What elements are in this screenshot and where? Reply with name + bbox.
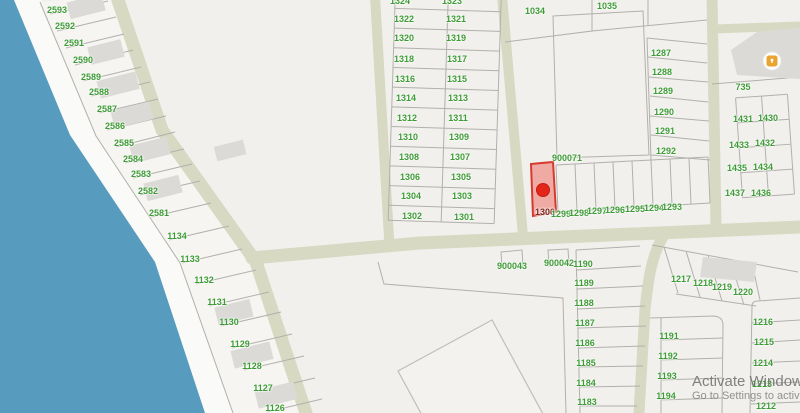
parcel-label-1133[interactable]: 1133 [180, 254, 200, 264]
parcel-label-1213[interactable]: 1213 [752, 379, 772, 389]
parcel-label-2593[interactable]: 2593 [47, 5, 67, 15]
parcel-label-1189[interactable]: 1189 [574, 278, 594, 288]
parcel-label-1128[interactable]: 1128 [242, 361, 262, 371]
parcel-label-1305[interactable]: 1305 [451, 172, 471, 182]
parcel-label-1131[interactable]: 1131 [207, 297, 227, 307]
parcel-label-1312[interactable]: 1312 [397, 113, 417, 123]
parcel-label-1437[interactable]: 1437 [725, 188, 745, 198]
parcel-label-1193[interactable]: 1193 [657, 371, 677, 381]
parcel-label-1293[interactable]: 1293 [662, 202, 682, 212]
parcel-label-1296[interactable]: 1296 [605, 205, 625, 215]
parcel-label-1322[interactable]: 1322 [394, 14, 414, 24]
parcel-label-2589[interactable]: 2589 [81, 72, 101, 82]
parcel-label-1324[interactable]: 1324 [390, 0, 410, 6]
parcel-label-1309[interactable]: 1309 [449, 132, 469, 142]
parcel-label-1291[interactable]: 1291 [655, 126, 675, 136]
parcel-label-1034[interactable]: 1034 [525, 6, 545, 16]
parcel-label-1194[interactable]: 1194 [656, 391, 676, 401]
parcel-label-2585[interactable]: 2585 [114, 138, 134, 148]
parcel-label-1295[interactable]: 1295 [625, 204, 645, 214]
parcel-label-1314[interactable]: 1314 [396, 93, 416, 103]
parcel-label-1434[interactable]: 1434 [753, 162, 773, 172]
parcel-label-1184[interactable]: 1184 [576, 378, 596, 388]
parcel-label-1316[interactable]: 1316 [395, 74, 415, 84]
parcel-label-1313[interactable]: 1313 [448, 93, 468, 103]
parcel-label-735[interactable]: 735 [735, 82, 750, 92]
parcel-label-1187[interactable]: 1187 [575, 318, 595, 328]
parcel-label-1308[interactable]: 1308 [399, 152, 419, 162]
parcel-label-1219[interactable]: 1219 [712, 282, 732, 292]
parcel-label-2586[interactable]: 2586 [105, 121, 125, 131]
parcel-label-2590[interactable]: 2590 [73, 55, 93, 65]
parcel-label-1307[interactable]: 1307 [450, 152, 470, 162]
parcel-label-1320[interactable]: 1320 [394, 33, 414, 43]
parcel-label-1217[interactable]: 1217 [671, 274, 691, 284]
parcel-label-1183[interactable]: 1183 [577, 397, 597, 407]
parcel-label-1214[interactable]: 1214 [753, 358, 773, 368]
parcel-label-1035[interactable]: 1035 [597, 1, 617, 11]
parcel-label-1310[interactable]: 1310 [398, 132, 418, 142]
parcel-label-1306[interactable]: 1306 [400, 172, 420, 182]
parcel-label-1319[interactable]: 1319 [446, 33, 466, 43]
parcel-label-1191[interactable]: 1191 [659, 331, 679, 341]
parcel-label-1212[interactable]: 1212 [756, 401, 776, 411]
parcel-label-2588[interactable]: 2588 [89, 87, 109, 97]
parcel-label-1218[interactable]: 1218 [693, 278, 713, 288]
parcel-label-2592[interactable]: 2592 [55, 21, 75, 31]
parcel-label-1311[interactable]: 1311 [448, 113, 468, 123]
parcel-label-1318[interactable]: 1318 [394, 54, 414, 64]
parcel-label-1321[interactable]: 1321 [446, 14, 466, 24]
parcel-labels-layer: 2593259225912590258925882587258625852584… [0, 0, 800, 413]
parcel-label-1289[interactable]: 1289 [653, 86, 673, 96]
parcel-label-1127[interactable]: 1127 [253, 383, 273, 393]
parcel-label-2587[interactable]: 2587 [97, 104, 117, 114]
parcel-label-1436[interactable]: 1436 [751, 188, 771, 198]
parcel-label-1216[interactable]: 1216 [753, 317, 773, 327]
parcel-label-1190[interactable]: 1190 [573, 259, 593, 269]
parcel-label-900071[interactable]: 900071 [552, 153, 582, 163]
parcel-label-1302[interactable]: 1302 [402, 211, 422, 221]
parcel-label-1435[interactable]: 1435 [727, 163, 747, 173]
parcel-label-1433[interactable]: 1433 [729, 140, 749, 150]
parcel-label-2583[interactable]: 2583 [131, 169, 151, 179]
parcel-label-1134[interactable]: 1134 [167, 231, 187, 241]
parcel-label-1215[interactable]: 1215 [754, 337, 774, 347]
parcel-label-1188[interactable]: 1188 [574, 298, 594, 308]
parcel-label-1323[interactable]: 1323 [442, 0, 462, 6]
parcel-label-1304[interactable]: 1304 [401, 191, 421, 201]
parcel-label-900042[interactable]: 900042 [544, 258, 574, 268]
parcel-label-1317[interactable]: 1317 [447, 54, 467, 64]
parcel-label-1192[interactable]: 1192 [658, 351, 678, 361]
parcel-label-1301[interactable]: 1301 [454, 212, 474, 222]
parcel-label-2582[interactable]: 2582 [138, 186, 158, 196]
parcel-label-1186[interactable]: 1186 [575, 338, 595, 348]
parcel-label-1287[interactable]: 1287 [651, 48, 671, 58]
parcel-label-1292[interactable]: 1292 [656, 146, 676, 156]
parcel-label-1220[interactable]: 1220 [733, 287, 753, 297]
parcel-label-1288[interactable]: 1288 [652, 67, 672, 77]
parcel-label-900043[interactable]: 900043 [497, 261, 527, 271]
parcel-label-1315[interactable]: 1315 [447, 74, 467, 84]
parcel-label-1431[interactable]: 1431 [733, 114, 753, 124]
map-canvas[interactable]: 2593259225912590258925882587258625852584… [0, 0, 800, 413]
parcel-label-1290[interactable]: 1290 [654, 107, 674, 117]
parcel-label-1430[interactable]: 1430 [758, 113, 778, 123]
parcel-label-1130[interactable]: 1130 [219, 317, 239, 327]
parcel-label-2591[interactable]: 2591 [64, 38, 84, 48]
parcel-label-1126[interactable]: 1126 [265, 403, 285, 413]
parcel-label-1303[interactable]: 1303 [452, 191, 472, 201]
parcel-label-1132[interactable]: 1132 [194, 275, 214, 285]
parcel-label-1432[interactable]: 1432 [755, 138, 775, 148]
parcel-label-1129[interactable]: 1129 [230, 339, 250, 349]
parcel-label-2584[interactable]: 2584 [123, 154, 143, 164]
parcel-label-1185[interactable]: 1185 [576, 358, 596, 368]
parcel-label-2581[interactable]: 2581 [149, 208, 169, 218]
